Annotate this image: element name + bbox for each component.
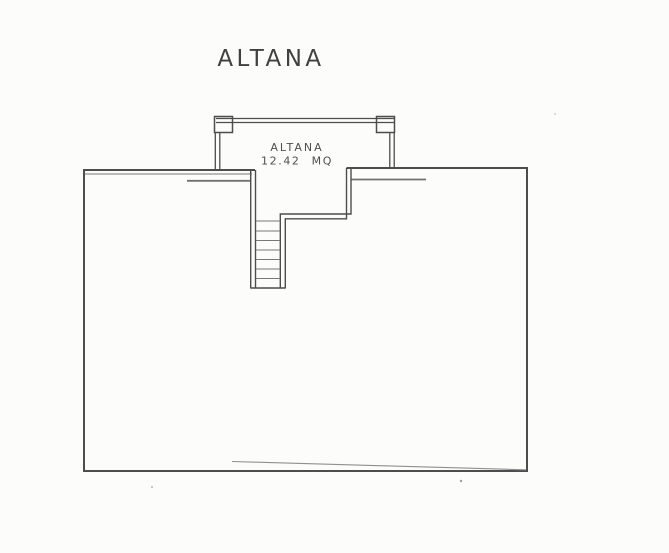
scanned-floor-plan: ALTANA ALTANA 12.42 MQ bbox=[0, 0, 669, 553]
stair-right-wall-outer bbox=[280, 168, 351, 289]
plan-title: ALTANA bbox=[217, 46, 324, 72]
stair-right-wall-inner bbox=[285, 168, 346, 289]
room-label: ALTANA 12.42 MQ bbox=[261, 141, 333, 168]
scan-speck bbox=[151, 486, 153, 488]
floor-plan-drawing: ALTANA ALTANA 12.42 MQ bbox=[0, 0, 669, 553]
room-area: 12.42 MQ bbox=[261, 155, 333, 168]
roof-eave-lines bbox=[187, 180, 426, 181]
scan-skew-line bbox=[232, 462, 526, 470]
scan-speck bbox=[460, 480, 462, 482]
scan-speck bbox=[554, 113, 556, 115]
room-name: ALTANA bbox=[270, 141, 323, 154]
stairwell bbox=[251, 168, 351, 289]
stair-steps bbox=[256, 221, 280, 279]
